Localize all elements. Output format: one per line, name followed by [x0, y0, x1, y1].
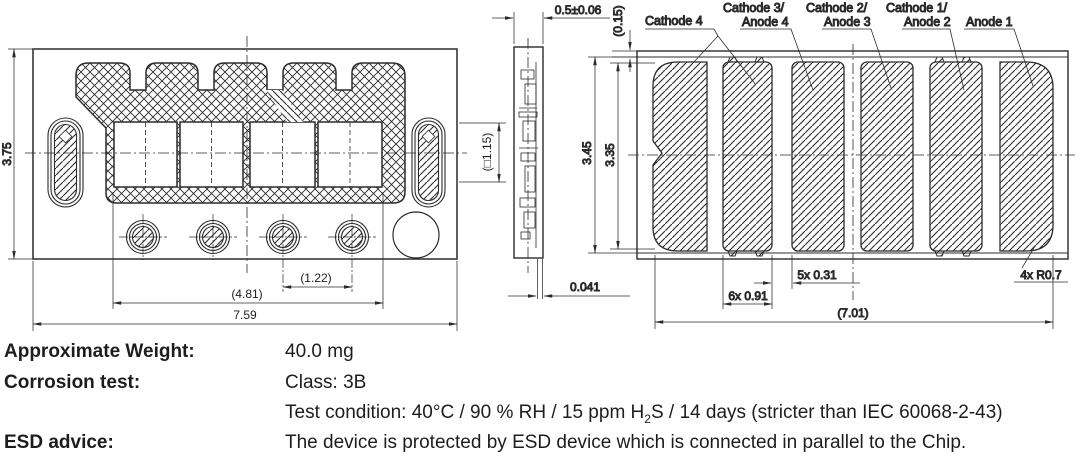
dim-front-height: 3.75 [0, 142, 14, 166]
label-cathode-1: Cathode 1/ [886, 1, 948, 15]
label-anode-2: Anode 2 [904, 15, 951, 29]
solder-pad-5 [930, 62, 982, 251]
dim-pad-total-width: (7.01) [837, 306, 868, 320]
emitter-body [76, 63, 405, 203]
dim-chip-size: (□1.15) [480, 133, 494, 172]
bottom-view: Cathode 4 Cathode 3/ Anode 4 Cathode 2/ … [580, 1, 1075, 329]
corrosion-class: Class: 3B [285, 372, 366, 394]
label-cathode-4: Cathode 4 [645, 14, 703, 28]
weight-value: 40.0 mg [285, 341, 354, 363]
thermal-vias [119, 214, 376, 292]
label-cathode-3: Cathode 3/ [723, 1, 785, 15]
solder-pad-3 [792, 62, 844, 251]
orientation-circle [393, 212, 439, 258]
thermal-via-1 [119, 214, 167, 260]
thermal-via-2 [189, 214, 237, 260]
label-anode-3: Anode 3 [824, 15, 871, 29]
dim-pad-region-height: 3.45 [580, 141, 594, 165]
dim-front-width: 7.59 [233, 308, 257, 322]
solder-pad-1-cathode4 [653, 62, 707, 251]
label-anode-1: Anode 1 [966, 15, 1013, 29]
test-condition-pre: Test condition: 40°C / 90 % RH / 15 ppm … [285, 402, 644, 423]
side-profile [519, 62, 538, 248]
label-anode-4: Anode 4 [742, 15, 789, 29]
dim-edge-offset: (0.15) [611, 5, 625, 36]
dim-front-pitch: (1.22) [300, 271, 331, 285]
solder-pad-2 [723, 62, 772, 251]
dim-front-span: (4.81) [231, 287, 262, 301]
test-condition: Test condition: 40°C / 90 % RH / 15 ppm … [285, 402, 1003, 426]
test-condition-post: S / 14 days (stricter than IEC 60068-2-4… [651, 402, 1003, 423]
technical-drawing: 3.75 7.59 (4.81) (1.22) (□1.15) [0, 0, 1080, 340]
dim-pad-width: 6x 0.91 [728, 289, 768, 303]
dim-pad-radius: 4x R0.7 [1020, 268, 1062, 282]
test-condition-sub: 2 [644, 412, 651, 426]
esd-label: ESD advice: [4, 432, 114, 454]
solder-pad-4 [861, 62, 913, 251]
alignment-oval-left [48, 118, 83, 207]
solder-pad-6-anode1 [1000, 62, 1053, 251]
alignment-oval-right [412, 118, 445, 207]
esd-value: The device is protected by ESD device wh… [285, 432, 966, 454]
dim-pad-gap: 5x 0.31 [797, 268, 837, 282]
thermal-via-4 [328, 214, 376, 292]
dim-standoff: 0.041 [570, 280, 600, 294]
label-cathode-2: Cathode 2/ [806, 1, 868, 15]
dim-pad-height: 3.35 [603, 143, 617, 167]
datasheet-package-drawing: 3.75 7.59 (4.81) (1.22) (□1.15) [0, 0, 1080, 457]
front-view: 3.75 7.59 (4.81) (1.22) (□1.15) [0, 36, 506, 331]
weight-label: Approximate Weight: [4, 341, 195, 363]
dim-thickness: 0.5±0.06 [555, 3, 602, 17]
corrosion-label: Corrosion test: [4, 372, 140, 394]
